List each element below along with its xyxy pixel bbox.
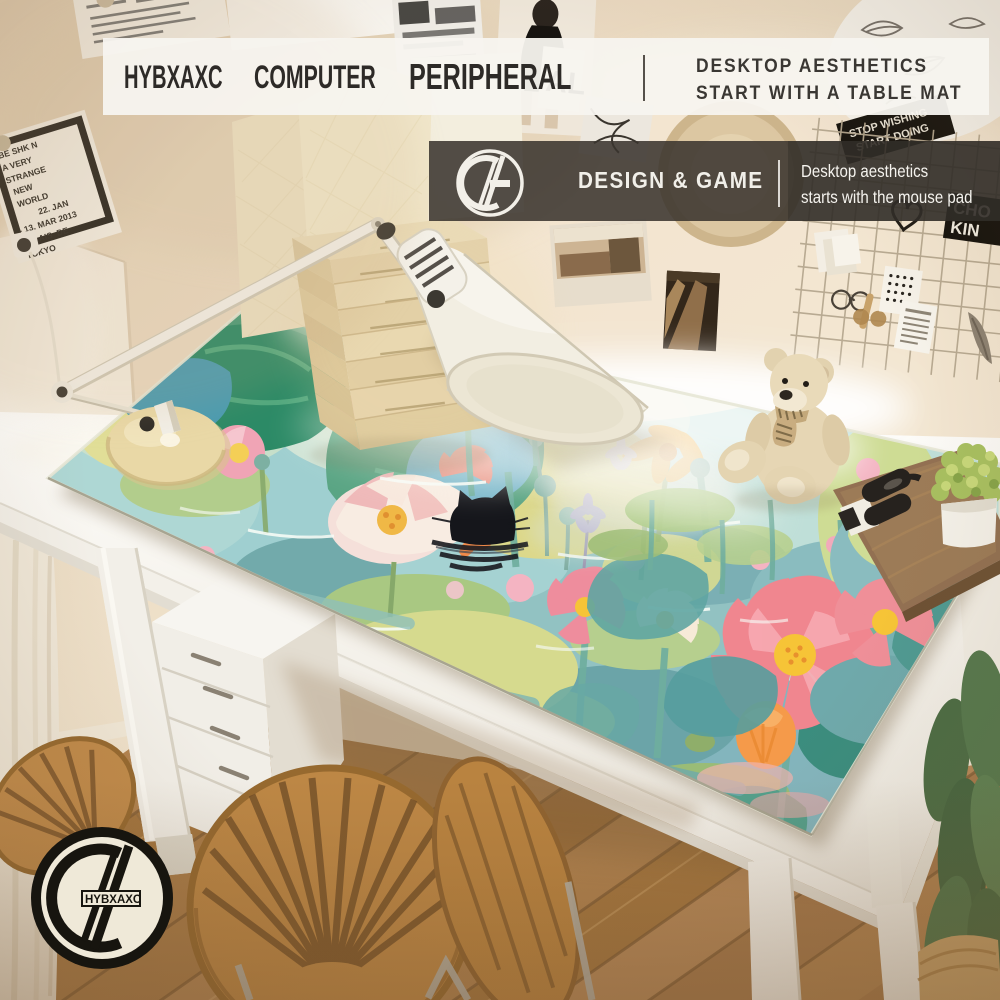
- svg-text:HYBXAXC: HYBXAXC: [85, 894, 141, 906]
